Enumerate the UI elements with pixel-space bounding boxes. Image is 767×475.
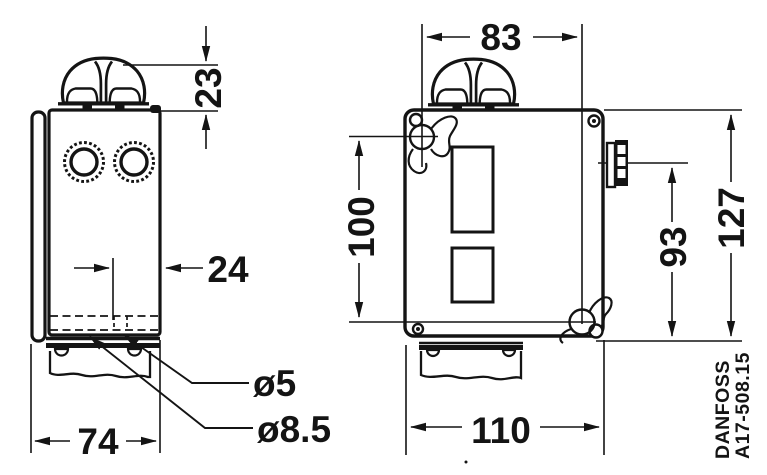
- side-back-plate: [32, 112, 45, 341]
- side-terminal-connector: [607, 140, 628, 187]
- front-view: 83 100 93 127 110: [341, 17, 752, 455]
- dim-label-74: 74: [77, 421, 119, 462]
- dim-front-width: 110: [411, 410, 599, 451]
- dim-label-83: 83: [480, 17, 521, 58]
- dim-label-127: 127: [711, 187, 752, 249]
- document-reference: DANFOSS A17-508.15: [712, 352, 754, 459]
- dim-label-24: 24: [207, 249, 249, 290]
- side-housing-body: [49, 110, 160, 335]
- window-cutout-lower: [452, 248, 493, 302]
- dim-mount-span-x: 83: [427, 17, 577, 58]
- window-cutout-upper: [452, 147, 493, 232]
- dim-connector-height: 93: [653, 168, 694, 336]
- brand-label: DANFOSS: [712, 360, 734, 459]
- dim-label-hole-small: ø5: [253, 363, 296, 404]
- print-speck: [465, 461, 468, 464]
- dim-label-hole-large: ø8.5: [257, 409, 331, 450]
- adjustment-knob-front: [428, 59, 519, 110]
- technical-drawing-canvas: 23 24 ø5 ø8.5 74: [0, 0, 767, 475]
- front-housing-box: [405, 110, 603, 336]
- front-base-plate: [419, 343, 523, 348]
- side-base-plate: [46, 339, 160, 346]
- dim-label-93: 93: [653, 226, 694, 267]
- dim-total-height: 127: [711, 115, 752, 336]
- dim-label-110: 110: [471, 410, 531, 451]
- dim-label-100: 100: [341, 196, 382, 258]
- side-view: 23 24 ø5 ø8.5 74: [31, 26, 331, 462]
- dim-mount-span-y: 100: [341, 141, 382, 317]
- dimension-drawing: 23 24 ø5 ø8.5 74: [0, 0, 767, 475]
- front-mounting-bracket: [421, 350, 521, 379]
- side-corner-tab: [150, 105, 161, 113]
- doc-ref-label: A17-508.15: [732, 352, 754, 459]
- dim-label-23: 23: [188, 67, 229, 108]
